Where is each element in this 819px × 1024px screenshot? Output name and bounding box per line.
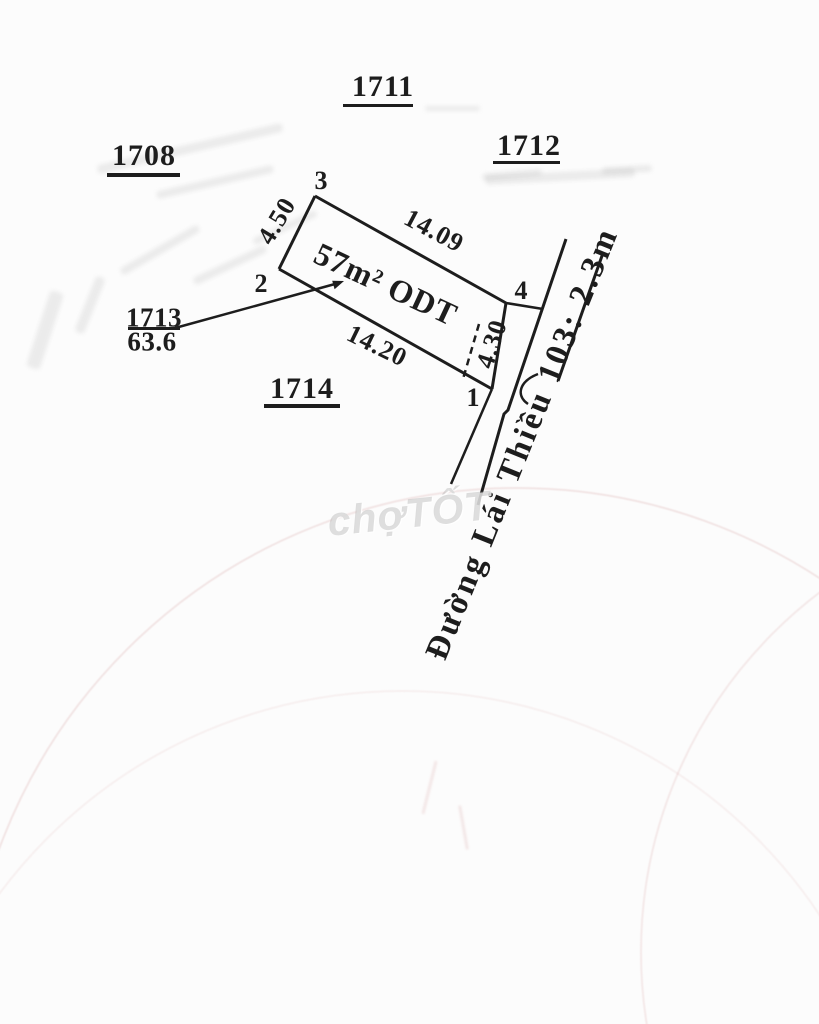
parcel-1714-underline [264,404,340,408]
corner-label-3: 3 [315,168,328,194]
parcel-1712-underline [493,161,560,164]
parcel-1711-underline [343,104,413,107]
corner-label-4: 4 [515,278,528,304]
parcel-1713-area: 63.6 [127,329,176,356]
corner-label-1: 1 [467,385,480,411]
parcel-number-1714: 1714 [270,374,334,404]
corner-label-2: 2 [255,271,268,297]
parcel-number-1712: 1712 [497,131,561,161]
parcel-number-1711: 1711 [352,72,414,102]
cadastral-plot-sketch: 1708 1711 1712 1713 63.6 1714 3 2 4 1 4.… [0,0,819,1024]
parcel-number-1708: 1708 [112,141,176,171]
parcel-1708-underline [107,173,180,177]
